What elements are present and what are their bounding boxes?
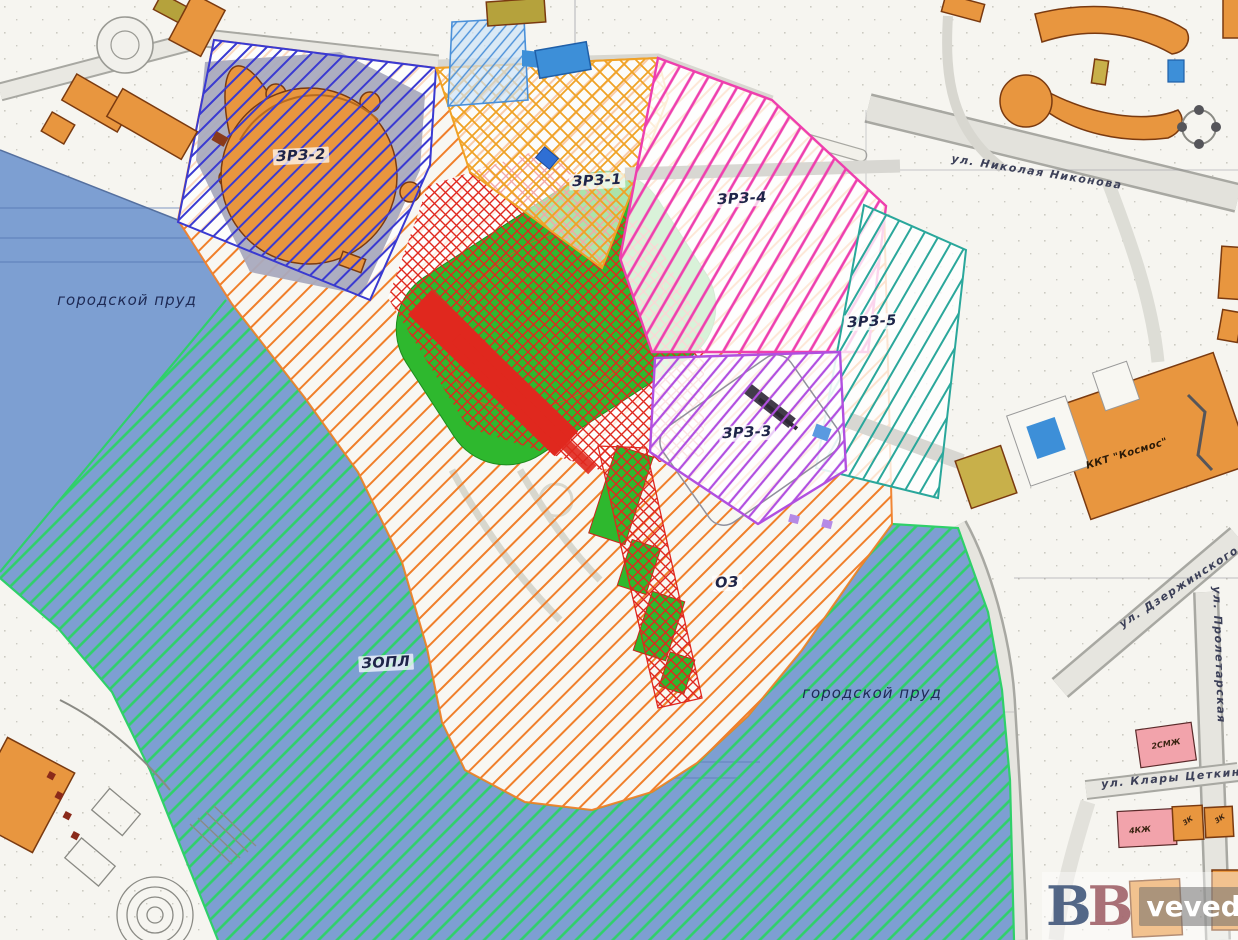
round-building [1000,75,1052,127]
zone-label-zrz5: ЗРЗ-5 [844,313,901,332]
watermark-site: veved.ru [1139,887,1238,926]
pond-label-left: городской пруд [57,291,197,309]
zone-label-zrz1: ЗРЗ-1 [569,172,626,191]
city-plan-map: ЗРЗ-2 ЗРЗ-1 ЗРЗ-4 ЗРЗ-5 ЗРЗ-3 ОЗ ЗОПЛ го… [0,0,1238,940]
zone-label-zrz2: ЗРЗ-2 [273,147,330,166]
watermark: В В veved.ru [1042,872,1238,940]
zone-label-oz: ОЗ [712,574,742,592]
watermark-letter-2: В [1088,876,1134,936]
zone-label-zopl: ЗОПЛ [358,654,414,673]
zone-label-zrz3: ЗРЗ-3 [719,424,776,443]
blue-building-small [1168,60,1184,82]
zone-label-zrz4: ЗРЗ-4 [714,190,771,209]
park-ring [97,17,153,73]
watermark-letter-1: В [1046,876,1092,936]
map-canvas [0,0,1238,940]
pond-label-right: городской пруд [802,684,942,702]
